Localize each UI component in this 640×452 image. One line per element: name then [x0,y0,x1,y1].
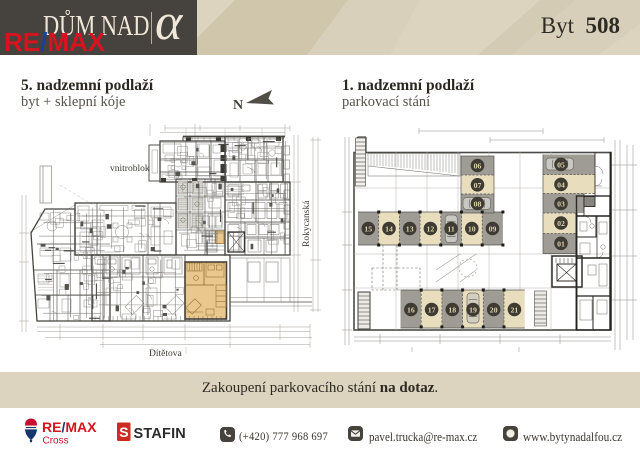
svg-text:07: 07 [474,181,482,190]
svg-text:06: 06 [474,162,482,171]
svg-text:10: 10 [468,225,476,234]
svg-text:vnitroblok: vnitroblok [110,164,150,174]
svg-text:Rokycanská: Rokycanská [302,200,312,247]
svg-text:11: 11 [447,225,454,234]
svg-text:19: 19 [469,306,477,315]
svg-text:04: 04 [557,180,565,189]
svg-text:18: 18 [448,306,456,315]
svg-text:Dítětova: Dítětova [149,349,182,359]
svg-text:S: S [119,424,128,440]
svg-text:21: 21 [511,306,519,315]
svg-text:RE/MAX: RE/MAX [42,419,97,435]
svg-text:05: 05 [557,160,565,169]
svg-text:Cross: Cross [43,436,69,447]
svg-text:20: 20 [490,306,498,315]
svg-text:12: 12 [427,225,435,234]
svg-text:13: 13 [406,225,414,234]
svg-text:16: 16 [407,306,415,315]
svg-text:08: 08 [474,200,482,209]
svg-text:01: 01 [557,239,565,248]
svg-text:15: 15 [364,225,372,234]
svg-text:02: 02 [557,219,565,228]
svg-text:14: 14 [385,225,393,234]
svg-text:09: 09 [489,225,497,234]
svg-text:03: 03 [557,200,565,209]
svg-text:17: 17 [428,306,436,315]
svg-text:STAFIN: STAFIN [134,426,186,442]
